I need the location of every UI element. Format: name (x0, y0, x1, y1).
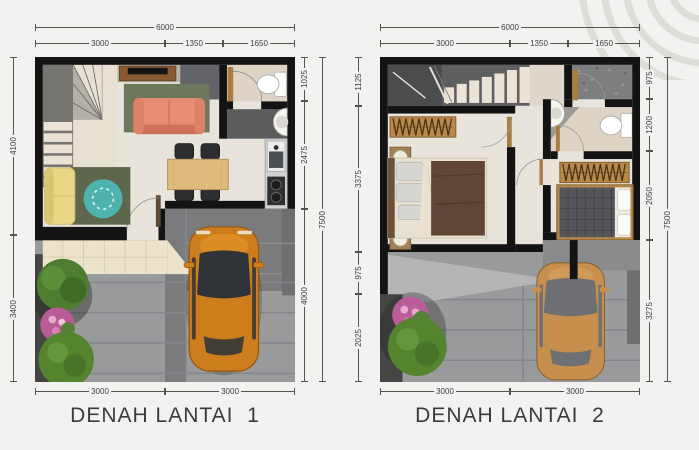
dim-right-seg-f1: 4000 (300, 209, 310, 382)
bed-2 (557, 185, 633, 240)
dim-left-seg-f1: 4100 (9, 57, 19, 235)
dim-right-seg-f2: 975 (645, 57, 655, 99)
wardrobe-2 (560, 162, 629, 182)
dim-top-total-f2: 6000 (380, 23, 640, 33)
mirror-right (253, 262, 263, 267)
floor-plan-1 (35, 57, 295, 382)
car (184, 226, 264, 376)
dim-top-seg-f2: 3000 (380, 39, 510, 49)
dim-top-total-f1: 6000 (35, 23, 295, 33)
bath2-door-leaf (556, 125, 560, 151)
wardrobe-1 (390, 117, 456, 137)
master-bed (388, 147, 487, 249)
dim-right-total-f2: 7500 (663, 57, 673, 382)
dim-top-seg-f2: 1650 (568, 39, 640, 49)
dim-top-seg-f1: 1350 (165, 39, 223, 49)
dim-top-seg-f2: 1350 (510, 39, 568, 49)
dim-bottom-seg-f1: 3000 (165, 387, 295, 397)
tv (128, 68, 168, 75)
plan-title-1: DENAH LANTAI 1 (35, 404, 295, 428)
dim-right-seg-f1: 1025 (300, 57, 310, 101)
floor-plan-2 (380, 57, 640, 382)
bathroom-2 (550, 99, 632, 151)
dim-right-seg-f2: 3275 (645, 240, 655, 382)
dim-left-seg-f2: 1125 (354, 57, 364, 106)
mirror-left (184, 262, 194, 267)
windshield (197, 250, 251, 298)
dim-right-seg-f2: 2050 (645, 151, 655, 240)
dim-right-seg-f1: 2475 (300, 101, 310, 209)
dim-bottom-seg-f1: 3000 (35, 387, 165, 397)
sofa (133, 98, 205, 134)
tv-console (120, 66, 176, 81)
ghost-car (532, 263, 609, 380)
dim-left-seg-f2: 975 (354, 252, 364, 294)
stairs-2 (388, 65, 564, 106)
balcony-door-leaf (572, 70, 578, 100)
dim-bottom-seg-f2: 3000 (510, 387, 640, 397)
dim-top-seg-f1: 3000 (35, 39, 165, 49)
bathroom-1 (227, 65, 287, 102)
dim-right-seg-f2: 1200 (645, 99, 655, 151)
brown-blanket (431, 161, 485, 236)
bathroom-door-leaf (228, 67, 234, 102)
left-wall-stub (380, 252, 388, 294)
carport-wall-stub (570, 240, 578, 279)
dim-left-seg-f2: 3375 (354, 106, 364, 252)
teal-rug (84, 179, 123, 218)
floorplan-canvas: 6000 3000 1350 1650 4100 3400 1025 2475 … (0, 0, 699, 450)
dim-right-total-f1: 7500 (318, 57, 328, 382)
dim-left-seg-f2: 2025 (354, 294, 364, 382)
lounge-corner (45, 167, 131, 225)
dim-bottom-seg-f2: 3000 (380, 387, 510, 397)
dining-table (168, 159, 229, 189)
dim-left-seg-f1: 3400 (9, 235, 19, 382)
dim-top-seg-f1: 1650 (223, 39, 295, 49)
plan-title-2: DENAH LANTAI 2 (380, 404, 640, 428)
balcony (572, 65, 632, 101)
